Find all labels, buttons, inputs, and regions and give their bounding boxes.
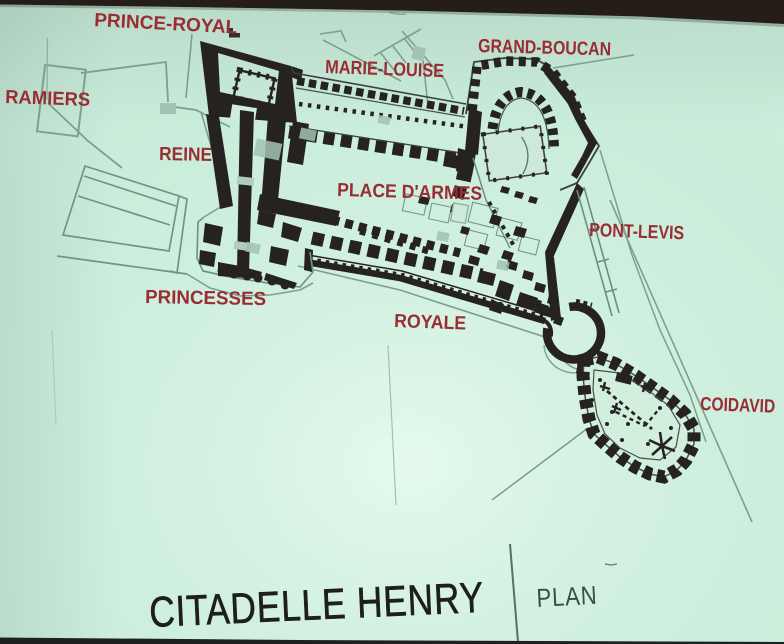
- svg-text:MARIE-LOUISE: MARIE-LOUISE: [325, 57, 445, 82]
- svg-text:RAMIERS: RAMIERS: [5, 87, 91, 111]
- svg-text:REINE: REINE: [159, 144, 212, 166]
- svg-text:PLACE D'ARMES: PLACE D'ARMES: [337, 180, 483, 205]
- svg-text:COIDAVID: COIDAVID: [700, 394, 776, 418]
- svg-text:GRAND-BOUCAN: GRAND-BOUCAN: [478, 36, 612, 60]
- svg-text:PRINCESSES: PRINCESSES: [145, 287, 266, 310]
- svg-text:PONT-LEVIS: PONT-LEVIS: [589, 220, 685, 244]
- svg-text:ROYALE: ROYALE: [394, 311, 467, 334]
- svg-text:PLAN: PLAN: [536, 580, 598, 613]
